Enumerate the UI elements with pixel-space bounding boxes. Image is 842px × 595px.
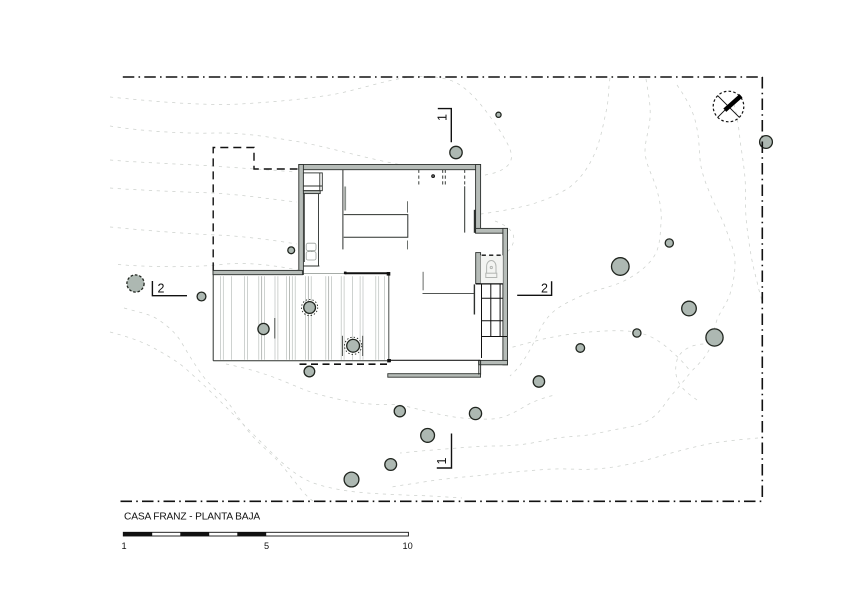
- svg-text:10: 10: [403, 541, 413, 551]
- svg-text:CASA FRANZ - PLANTA BAJA: CASA FRANZ - PLANTA BAJA: [124, 512, 260, 523]
- svg-text:1: 1: [435, 457, 449, 464]
- svg-text:1: 1: [435, 114, 449, 121]
- svg-text:2: 2: [541, 282, 548, 296]
- svg-text:2: 2: [158, 282, 165, 296]
- svg-text:5: 5: [264, 541, 269, 551]
- svg-text:1: 1: [122, 541, 127, 551]
